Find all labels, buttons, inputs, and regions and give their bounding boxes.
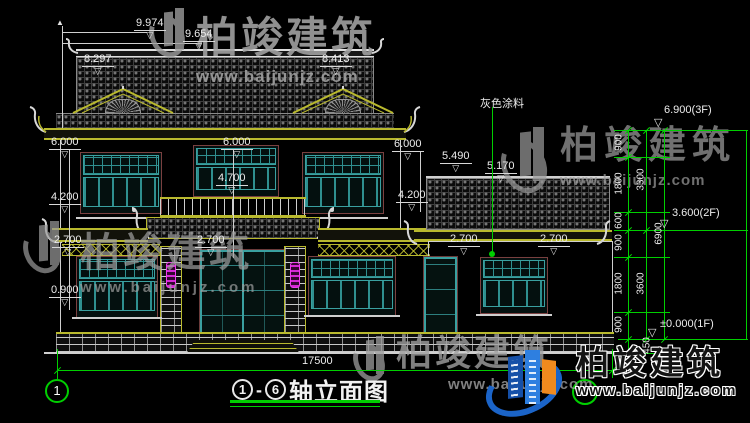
leader-arrow: ▲ (56, 18, 64, 28)
elevation-eave-left: 6.000▽ (49, 137, 81, 158)
elevation-sill2-right: 4.200▽ (396, 190, 428, 211)
elevation-gable-right: 8.413▽ (320, 54, 352, 75)
watermark-brand: 柏竣建筑 (560, 114, 736, 169)
level-3f: 6.900(3F) (664, 104, 712, 116)
eave-corner-upturn (596, 220, 612, 246)
elevation-annex-win-b: 2.700▽ (538, 234, 570, 255)
level-2f: 3.600(2F) (672, 207, 720, 219)
roof-skirt-tiles (56, 113, 394, 129)
paint-leader-line (492, 107, 493, 253)
level-marker: ▽ (654, 118, 662, 128)
cad-elevation-canvas: 柏竣建筑 www.baijunjz.com 柏竣建筑 www.baijunjz.… (0, 0, 750, 423)
paint-leader-dot (489, 251, 495, 257)
elevation-ridge-upper: 9.654▽ (183, 29, 215, 50)
elevation-annex-win-a: 2.700▽ (448, 234, 480, 255)
level-line-2f (614, 230, 748, 231)
lantern-right (290, 262, 300, 288)
window-sill (476, 314, 552, 316)
dim-segment: 1800 (614, 266, 625, 302)
elevation-win1-left: 2.700▽ (52, 235, 84, 256)
paint-finish-label: 灰色涂料 (480, 95, 524, 111)
axis-bubble-1: 1 (45, 379, 69, 403)
watermark-right: 柏竣建筑 www.baijunjz.com (560, 114, 736, 189)
eave-corner-upturn (28, 106, 48, 134)
watermark-brand: 柏竣建筑 (80, 220, 257, 278)
title-underline (230, 400, 380, 403)
brand-url: www.baijunjz.com (576, 382, 737, 399)
eave-corner-upturn (402, 220, 418, 246)
elevation-sill2-left: 4.200▽ (49, 192, 81, 213)
elevation-annex-roof-low: 5.170▽ (485, 161, 517, 182)
dim-border-line (746, 130, 747, 339)
gable-fan-ornament (105, 99, 141, 113)
elevation-sill1: 0.900▽ (49, 285, 81, 306)
level-marker: ▽ (648, 328, 656, 338)
dim-segment: 900 (614, 125, 625, 161)
elevation-ridge-peak: 9.974▽ (134, 18, 166, 39)
title-dash: - (256, 381, 262, 399)
ridge-end-ornament (64, 38, 80, 54)
brand-logo: 柏竣建筑 www.baijunjz.com (482, 344, 750, 423)
watermark-url: www.baijunjz.com (80, 279, 257, 296)
elevation-balcony-rail: 4.700▽ (216, 173, 248, 194)
level-1f: ±0.000(1F) (660, 318, 714, 330)
dim-chain-line (628, 130, 629, 353)
window-sill (72, 317, 162, 319)
elevation-eave-center: 6.000▽ (221, 137, 253, 158)
brand-logo-icon (482, 344, 574, 423)
window-sill (304, 315, 400, 317)
axis-circle-to: 6 (265, 379, 286, 400)
dim-total-width: 17500 (302, 355, 333, 367)
dim-segment: 1800 (614, 166, 625, 202)
elevation-annex-roof-high: 5.490▽ (440, 151, 472, 172)
watermark-midleft: 柏竣建筑 www.baijunjz.com (80, 220, 257, 296)
eave-corner-upturn (402, 106, 422, 134)
elevation-win1-center: 2.700▽ (195, 235, 227, 256)
axis-circle-from: 1 (232, 379, 253, 400)
dim-subtotal: 3600 (636, 266, 647, 302)
elevation-gable-left: 8.297▽ (82, 54, 114, 75)
window-2f-right (302, 152, 384, 214)
title-underline-thin (230, 406, 380, 407)
window-1f-right (308, 256, 396, 316)
gable-fan-ornament (325, 99, 361, 113)
brand-name: 柏竣建筑 (576, 344, 737, 382)
dim-segment: 900 (614, 307, 625, 343)
dim-subtotal: 3300 (636, 162, 647, 198)
annex-window (480, 257, 548, 314)
level-line-3f (614, 130, 748, 131)
watermark-url: www.baijunjz.com (560, 172, 736, 189)
extension-line (62, 26, 63, 128)
axis-line (57, 352, 58, 379)
elevation-eave-right: 6.000▽ (392, 139, 424, 160)
level-line-1f (618, 339, 748, 340)
annex-eave (414, 230, 612, 241)
level-marker: ▽ (660, 219, 668, 229)
window-2f-left (80, 152, 162, 214)
dim-segment: 900 (614, 225, 625, 261)
